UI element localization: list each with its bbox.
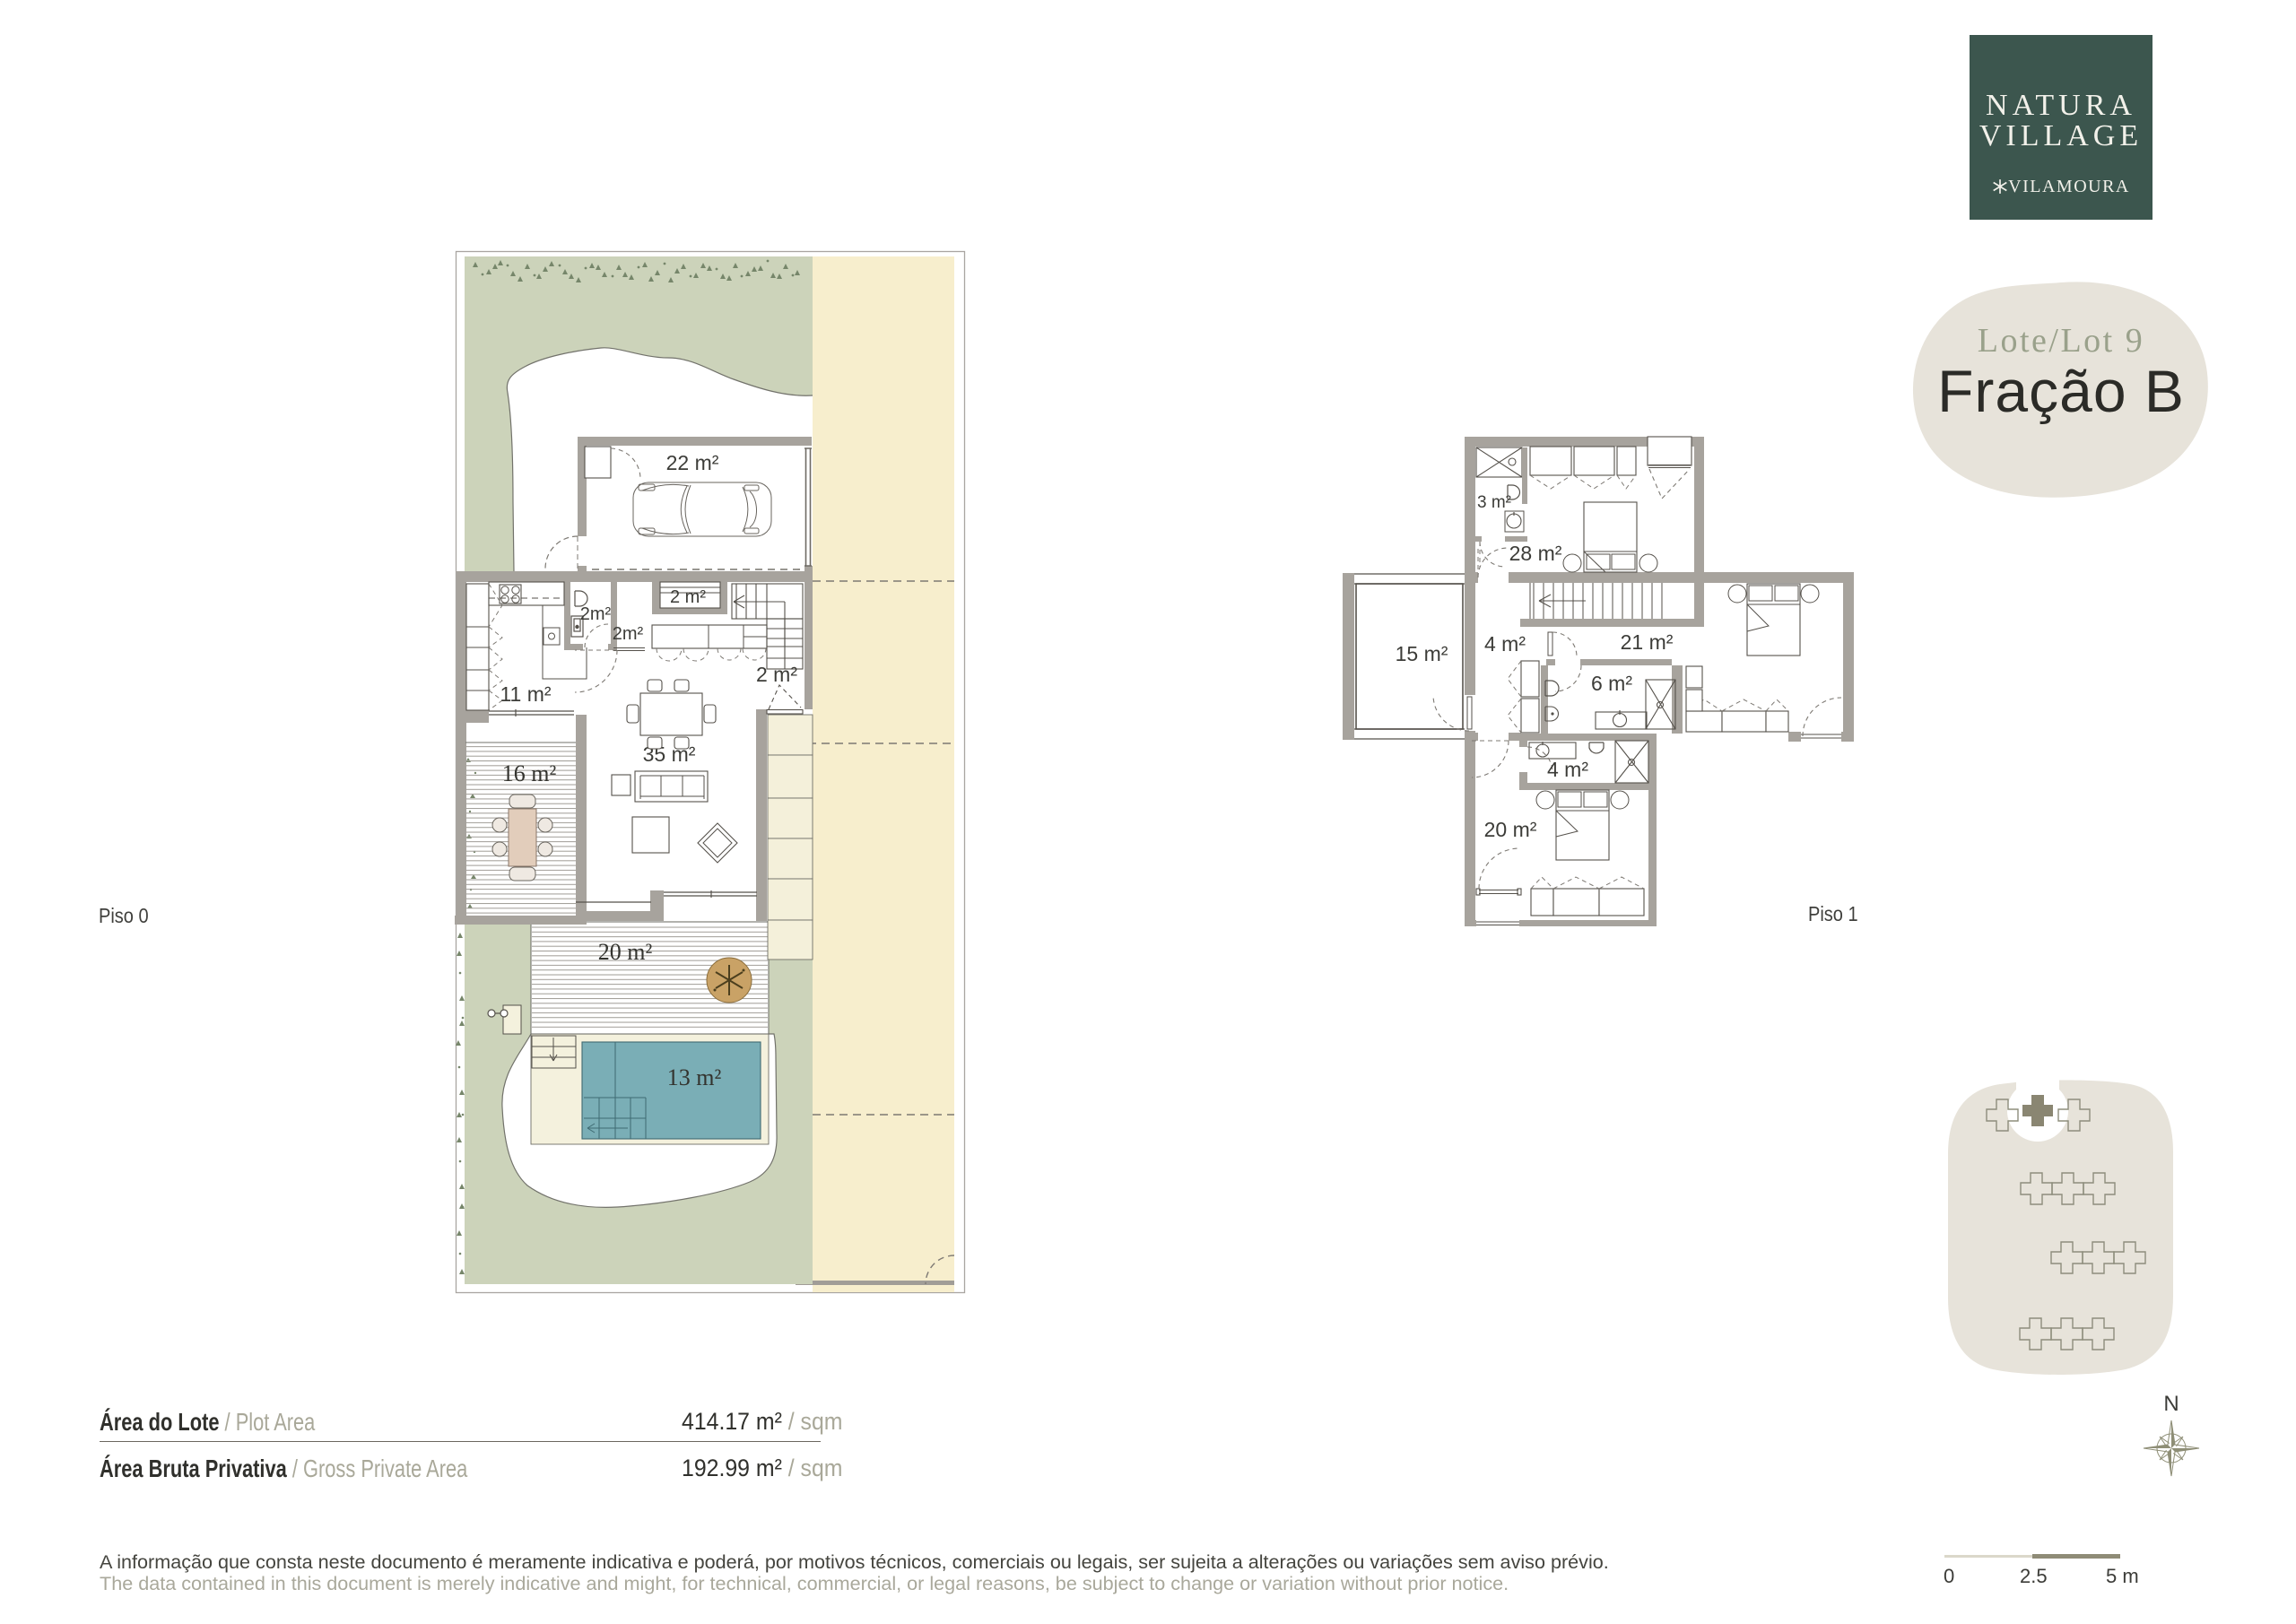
svg-text:4 m²: 4 m²	[1547, 758, 1588, 781]
svg-text:2 m²: 2 m²	[670, 587, 706, 607]
svg-text:13 m²: 13 m²	[667, 1064, 722, 1090]
svg-text:16 m²: 16 m²	[502, 760, 557, 786]
svg-text:4 m²: 4 m²	[1484, 632, 1526, 656]
svg-text:11 m²: 11 m²	[500, 682, 551, 706]
svg-text:21 m²: 21 m²	[1621, 630, 1674, 654]
svg-text:2m²: 2m²	[580, 604, 612, 624]
svg-text:2 m²: 2 m²	[756, 663, 797, 686]
svg-text:6 m²: 6 m²	[1591, 672, 1632, 695]
svg-text:15 m²: 15 m²	[1396, 642, 1448, 665]
svg-text:20 m²: 20 m²	[598, 939, 653, 965]
svg-text:20 m²: 20 m²	[1484, 818, 1537, 841]
svg-text:22 m²: 22 m²	[666, 451, 719, 474]
svg-text:2m²: 2m²	[613, 624, 644, 644]
svg-text:28 m²: 28 m²	[1509, 542, 1562, 565]
svg-text:3 m²: 3 m²	[1477, 493, 1511, 512]
